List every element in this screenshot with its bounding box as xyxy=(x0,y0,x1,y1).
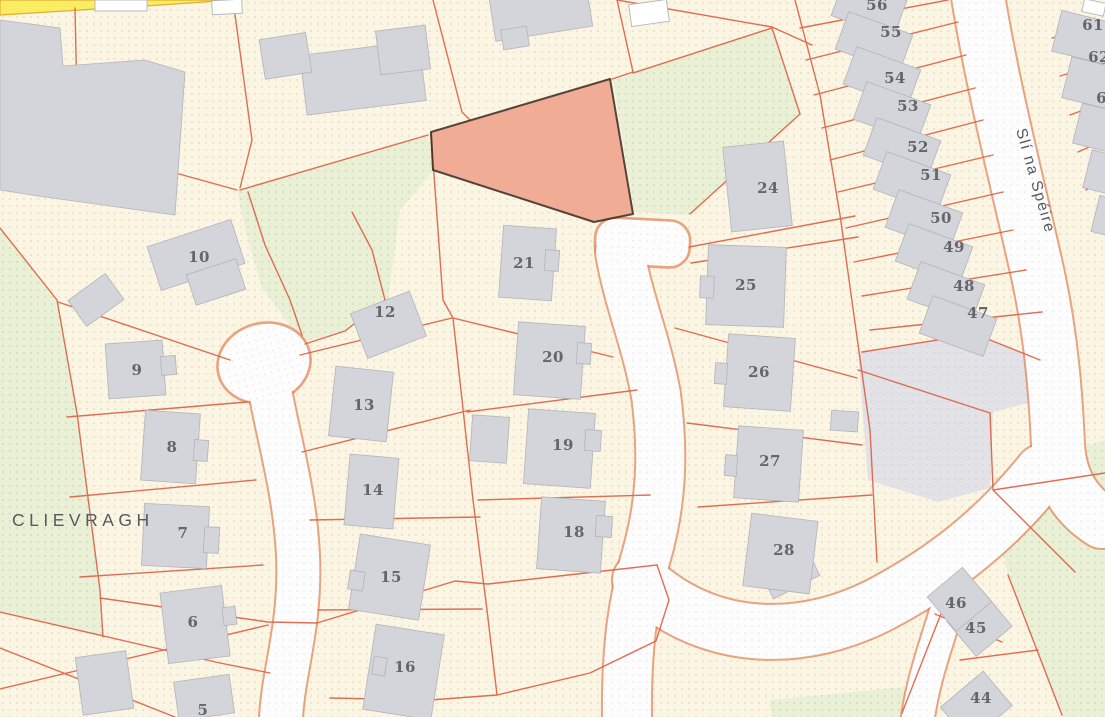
plot-number-label: 15 xyxy=(380,568,402,586)
building xyxy=(75,651,134,716)
plot-number-label: 49 xyxy=(943,238,965,256)
building xyxy=(544,250,559,272)
building xyxy=(259,32,312,79)
plot-number-label: 14 xyxy=(362,481,384,499)
building xyxy=(830,410,858,432)
plot-number-label: 55 xyxy=(880,23,902,41)
plot-number-label: 13 xyxy=(353,396,375,414)
plot-number-label: 9 xyxy=(132,361,143,379)
plot-number-label: 50 xyxy=(930,209,952,227)
building xyxy=(714,363,727,385)
townland-label: CLIEVRAGH xyxy=(12,510,154,530)
plot-number-label: 62 xyxy=(1088,48,1105,66)
building xyxy=(376,25,431,75)
building xyxy=(724,455,737,477)
central-culdesac-bulb xyxy=(595,218,689,267)
plot-number-label: 56 xyxy=(866,0,888,14)
building xyxy=(203,527,219,554)
plot-number-label: 10 xyxy=(188,248,210,266)
building xyxy=(160,355,176,375)
map-canvas[interactable]: 5678910121314151618192021242526272844454… xyxy=(0,0,1105,717)
plot-number-label: 7 xyxy=(178,524,189,542)
building xyxy=(576,343,591,365)
parcel-map-viewport[interactable]: 5678910121314151618192021242526272844454… xyxy=(0,0,1105,717)
building-outline xyxy=(212,0,243,15)
building xyxy=(469,415,509,463)
plot-number-label: 20 xyxy=(542,348,564,366)
plot-number-label: 24 xyxy=(757,179,779,197)
plot-number-label: 53 xyxy=(897,97,919,115)
plot-number-label: 61 xyxy=(1082,16,1104,34)
plot-number-label: 63 xyxy=(1096,89,1105,107)
plot-number-label: 48 xyxy=(953,277,975,295)
building xyxy=(222,606,237,625)
plot-number-label: 16 xyxy=(394,658,416,676)
plot-number-label: 5 xyxy=(198,701,209,717)
building xyxy=(700,276,715,298)
plot-number-label: 19 xyxy=(552,436,574,454)
plot-number-label: 44 xyxy=(970,689,992,707)
plot-number-label: 27 xyxy=(759,452,781,470)
plot-number-label: 54 xyxy=(884,69,906,87)
building-outline xyxy=(629,0,670,27)
plot-number-label: 26 xyxy=(748,363,770,381)
building xyxy=(348,570,366,591)
plot-number-label: 25 xyxy=(735,276,757,294)
plot-number-label: 28 xyxy=(773,541,795,559)
building xyxy=(595,515,612,537)
plot-number-label: 6 xyxy=(188,613,199,631)
plot-number-label: 51 xyxy=(920,166,942,184)
plot-number-label: 47 xyxy=(967,304,989,322)
plot-number-label: 52 xyxy=(907,138,929,156)
building xyxy=(584,429,601,451)
plot-number-label: 18 xyxy=(563,523,585,541)
plot-number-label: 46 xyxy=(945,594,967,612)
plot-number-label: 12 xyxy=(374,303,396,321)
plot-number-label: 45 xyxy=(965,619,987,637)
building-outline xyxy=(95,0,147,11)
building xyxy=(193,440,208,462)
building xyxy=(501,26,530,50)
plot-number-label: 21 xyxy=(513,254,535,272)
building xyxy=(372,656,388,676)
plot-number-label: 8 xyxy=(167,438,178,456)
